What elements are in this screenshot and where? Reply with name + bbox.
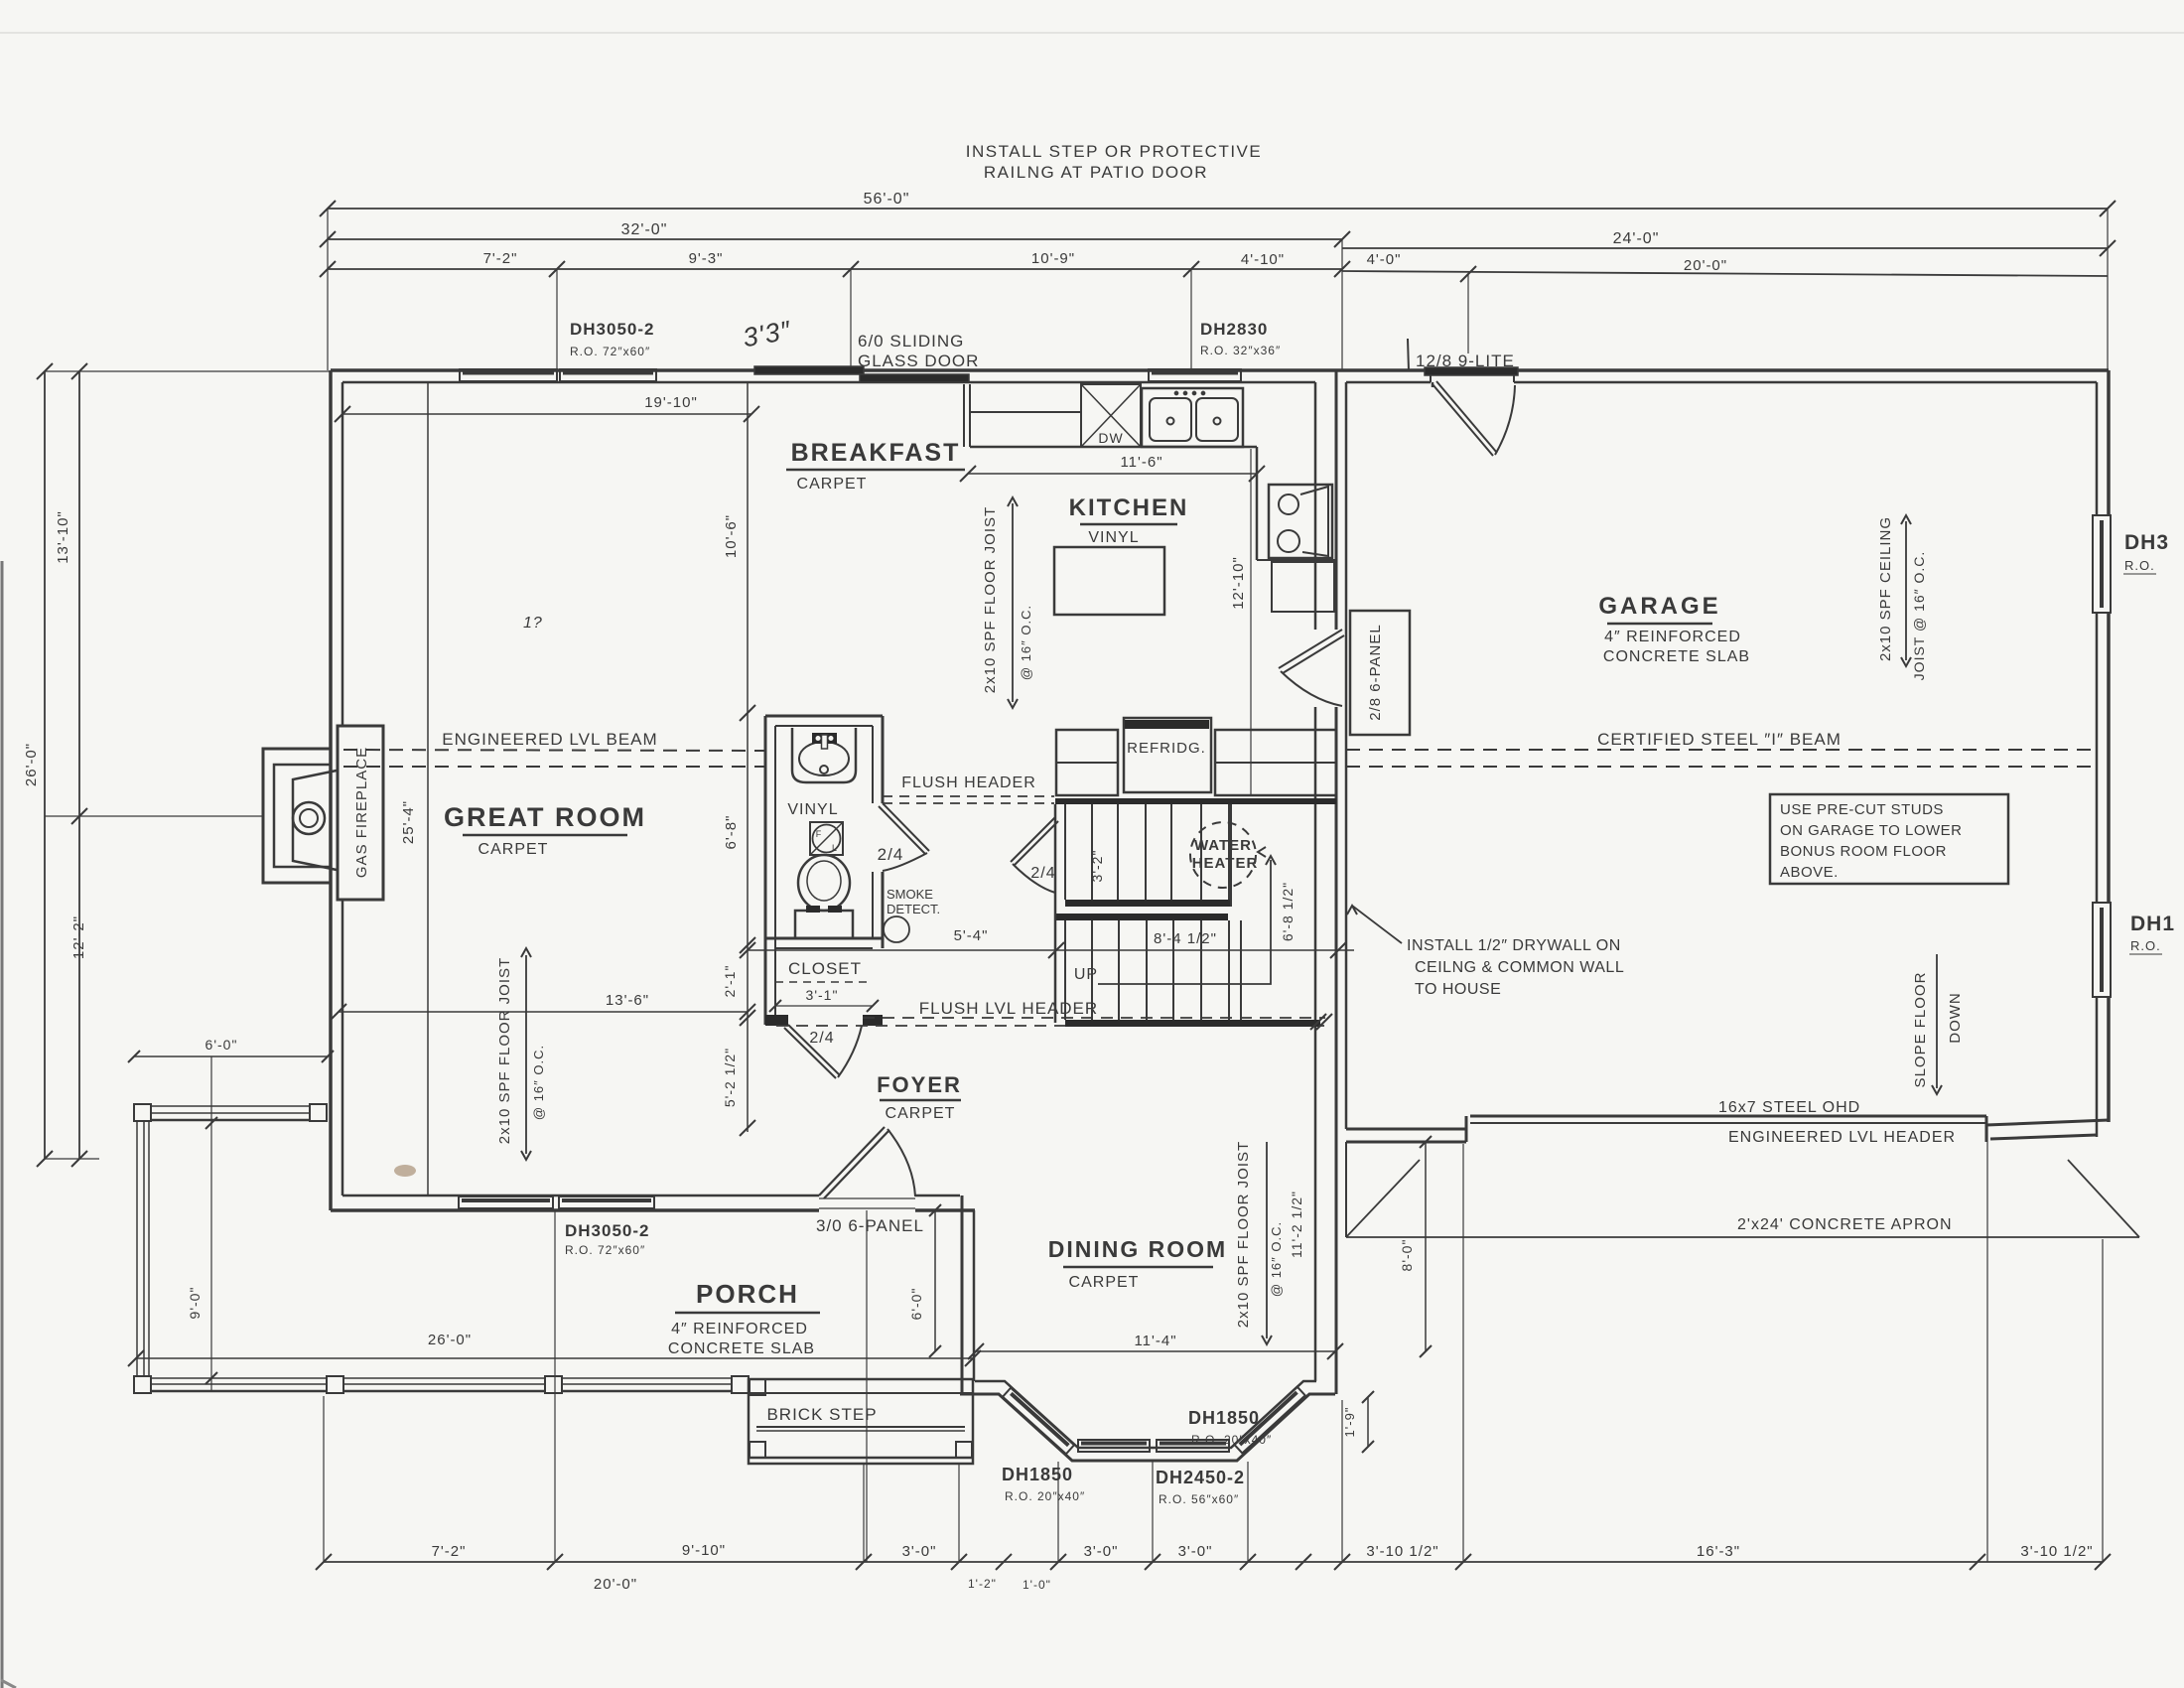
svg-text:CARPET: CARPET (1069, 1274, 1140, 1291)
svg-text:R.O. 20″x40″: R.O. 20″x40″ (1191, 1433, 1272, 1447)
svg-text:3'-0": 3'-0" (1084, 1543, 1119, 1560)
svg-text:KITCHEN: KITCHEN (1069, 494, 1189, 521)
svg-text:DW: DW (1098, 430, 1123, 446)
svg-text:1?: 1? (523, 615, 543, 632)
svg-text:6/0 SLIDING: 6/0 SLIDING (858, 332, 964, 351)
svg-text:@ 16″ O.C.: @ 16″ O.C. (1019, 605, 1033, 680)
svg-text:DH3: DH3 (2124, 531, 2169, 554)
svg-text:FOYER: FOYER (877, 1072, 962, 1097)
svg-text:10'-9": 10'-9" (1031, 250, 1075, 267)
svg-text:DH1850: DH1850 (1002, 1465, 1073, 1484)
svg-text:L: L (832, 843, 838, 853)
svg-text:R.O. 72″x60″: R.O. 72″x60″ (570, 345, 650, 358)
svg-text:24'-0": 24'-0" (1613, 230, 1660, 247)
svg-text:F: F (816, 829, 823, 839)
svg-text:USE PRE-CUT STUDS: USE PRE-CUT STUDS (1780, 801, 1944, 818)
svg-text:3/0 6-PANEL: 3/0 6-PANEL (816, 1216, 924, 1235)
svg-text:2'x24' CONCRETE APRON: 2'x24' CONCRETE APRON (1737, 1216, 1953, 1233)
svg-text:INSTALL STEP OR PROTECTIVE: INSTALL STEP OR PROTECTIVE (966, 142, 1262, 161)
svg-text:DH2830: DH2830 (1200, 320, 1268, 339)
svg-text:3'-0": 3'-0" (902, 1543, 937, 1560)
svg-text:BRICK STEP: BRICK STEP (766, 1405, 877, 1424)
svg-text:11'-6": 11'-6" (1120, 454, 1162, 471)
svg-text:25'-4": 25'-4" (400, 800, 417, 844)
svg-text:10'-6": 10'-6" (723, 514, 740, 558)
svg-text:20'-0": 20'-0" (1684, 257, 1727, 274)
svg-text:9'-3": 9'-3" (689, 250, 724, 267)
svg-text:@ 16″ O.C.: @ 16″ O.C. (531, 1045, 546, 1120)
svg-text:R.O. 72″x60″: R.O. 72″x60″ (565, 1243, 645, 1257)
svg-text:DH2450-2: DH2450-2 (1156, 1468, 1245, 1487)
svg-text:JOIST @ 16″ O.C.: JOIST @ 16″ O.C. (1911, 551, 1927, 681)
svg-text:2x10 SPF FLOOR JOIST: 2x10 SPF FLOOR JOIST (1235, 1141, 1252, 1328)
svg-text:2/8 6-PANEL: 2/8 6-PANEL (1367, 624, 1384, 720)
svg-text:5'-4": 5'-4" (954, 927, 989, 944)
svg-text:GLASS DOOR: GLASS DOOR (858, 352, 979, 370)
svg-text:R.O.: R.O. (2130, 938, 2161, 953)
svg-text:ENGINEERED LVL HEADER: ENGINEERED LVL HEADER (1728, 1129, 1956, 1146)
svg-text:7'-2": 7'-2" (483, 250, 518, 267)
svg-text:DH1850: DH1850 (1188, 1408, 1260, 1428)
svg-text:CONCRETE SLAB: CONCRETE SLAB (1603, 648, 1750, 665)
svg-text:SLOPE FLOOR: SLOPE FLOOR (1912, 972, 1929, 1088)
svg-text:RAILNG AT PATIO DOOR: RAILNG AT PATIO DOOR (984, 163, 1208, 182)
svg-text:@ 16″ O.C.: @ 16″ O.C. (1269, 1221, 1284, 1297)
svg-text:2'-1": 2'-1" (722, 965, 738, 998)
svg-text:2/4: 2/4 (809, 1030, 834, 1047)
svg-text:16x7 STEEL OHD: 16x7 STEEL OHD (1718, 1099, 1860, 1116)
svg-text:6'-8": 6'-8" (723, 815, 740, 850)
svg-text:6'-0": 6'-0" (205, 1037, 238, 1053)
svg-text:4'-10": 4'-10" (1241, 251, 1285, 268)
svg-text:26'-0": 26'-0" (428, 1332, 472, 1348)
svg-text:6'-0": 6'-0" (908, 1288, 924, 1321)
svg-text:4'-0": 4'-0" (1367, 251, 1402, 268)
svg-text:GARAGE: GARAGE (1598, 593, 1720, 620)
svg-text:2x10 SPF FLOOR JOIST: 2x10 SPF FLOOR JOIST (496, 957, 513, 1144)
svg-text:PORCH: PORCH (696, 1279, 799, 1309)
svg-text:DH3050-2: DH3050-2 (565, 1221, 650, 1240)
svg-text:13'-6": 13'-6" (606, 992, 649, 1009)
svg-text:20'-0": 20'-0" (594, 1576, 637, 1593)
svg-text:TO HOUSE: TO HOUSE (1415, 981, 1501, 998)
svg-text:4″ REINFORCED: 4″ REINFORCED (671, 1321, 808, 1337)
svg-text:CERTIFIED STEEL ″I″ BEAM: CERTIFIED STEEL ″I″ BEAM (1597, 730, 1842, 749)
svg-text:7'-2": 7'-2" (432, 1543, 467, 1560)
svg-text:2x10 SPF CEILING: 2x10 SPF CEILING (1877, 516, 1894, 661)
svg-text:3'-2": 3'-2" (1089, 850, 1105, 883)
svg-text:CARPET: CARPET (886, 1105, 956, 1122)
svg-text:16'-3": 16'-3" (1697, 1543, 1740, 1560)
svg-text:1'-0": 1'-0" (1023, 1578, 1051, 1592)
svg-text:1'-2": 1'-2" (968, 1577, 997, 1591)
svg-text:DINING ROOM: DINING ROOM (1048, 1236, 1227, 1262)
svg-text:12'-2": 12'-2" (70, 915, 87, 959)
svg-text:8'-0": 8'-0" (1399, 1239, 1415, 1272)
svg-text:CARPET: CARPET (478, 841, 549, 858)
svg-text:2/4: 2/4 (878, 845, 904, 864)
svg-text:3'-0": 3'-0" (1178, 1543, 1213, 1560)
svg-text:GREAT ROOM: GREAT ROOM (444, 802, 646, 832)
svg-text:INSTALL 1/2″ DRYWALL ON: INSTALL 1/2″ DRYWALL ON (1407, 937, 1621, 954)
svg-text:R.O. 32″x36″: R.O. 32″x36″ (1200, 344, 1281, 357)
svg-text:9'-10": 9'-10" (682, 1542, 726, 1559)
svg-text:2x10 SPF FLOOR JOIST: 2x10 SPF FLOOR JOIST (982, 506, 999, 693)
svg-text:DH3050-2: DH3050-2 (570, 320, 655, 339)
svg-text:REFRIDG.: REFRIDG. (1127, 740, 1206, 757)
svg-text:HEATER: HEATER (1192, 855, 1259, 872)
svg-text:FLUSH LVL HEADER: FLUSH LVL HEADER (919, 999, 1098, 1018)
svg-text:19'-10": 19'-10" (644, 394, 698, 411)
svg-text:DOWN: DOWN (1947, 992, 1964, 1044)
svg-text:R.O. 56″x60″: R.O. 56″x60″ (1159, 1492, 1239, 1506)
svg-text:SMOKE: SMOKE (887, 887, 933, 902)
svg-text:3'-10 1/2": 3'-10 1/2" (2020, 1543, 2093, 1560)
svg-text:8'-4 1/2": 8'-4 1/2" (1154, 930, 1217, 947)
svg-text:R.O. 20″x40″: R.O. 20″x40″ (1005, 1489, 1085, 1503)
svg-text:3'-10 1/2": 3'-10 1/2" (1366, 1543, 1438, 1560)
svg-text:UP: UP (1074, 966, 1098, 983)
svg-text:VINYL: VINYL (787, 801, 838, 818)
svg-text:3'-1": 3'-1" (806, 987, 839, 1003)
svg-text:11'-2 1/2": 11'-2 1/2" (1289, 1191, 1304, 1258)
svg-text:ENGINEERED LVL BEAM: ENGINEERED LVL BEAM (442, 730, 657, 749)
svg-text:9'-0": 9'-0" (187, 1287, 203, 1320)
svg-text:VINYL: VINYL (1088, 529, 1139, 546)
svg-text:DETECT.: DETECT. (887, 902, 940, 916)
svg-text:2/4: 2/4 (1030, 865, 1055, 882)
svg-text:DH1: DH1 (2130, 913, 2175, 935)
svg-text:CONCRETE SLAB: CONCRETE SLAB (668, 1340, 815, 1357)
svg-text:R.O.: R.O. (2124, 558, 2155, 573)
svg-text:56'-0": 56'-0" (864, 191, 910, 208)
svg-text:26'-0": 26'-0" (23, 743, 40, 786)
svg-text:6'-8 1/2": 6'-8 1/2" (1280, 882, 1296, 941)
svg-text:32'-0": 32'-0" (621, 221, 668, 238)
svg-text:CEILNG & COMMON WALL: CEILNG & COMMON WALL (1415, 959, 1624, 976)
svg-text:CLOSET: CLOSET (788, 959, 862, 978)
svg-text:ABOVE.: ABOVE. (1780, 864, 1839, 881)
svg-text:11'-4": 11'-4" (1134, 1333, 1176, 1349)
svg-text:ON GARAGE TO LOWER: ON GARAGE TO LOWER (1780, 822, 1962, 839)
svg-text:13'-10": 13'-10" (55, 510, 71, 564)
svg-text:BONUS ROOM FLOOR: BONUS ROOM FLOOR (1780, 843, 1947, 860)
svg-text:1'-9": 1'-9" (1342, 1407, 1357, 1438)
svg-text:12'-10": 12'-10" (1230, 556, 1247, 610)
svg-text:WATER: WATER (1194, 837, 1252, 854)
svg-text:CARPET: CARPET (797, 476, 868, 492)
svg-text:5'-2 1/2": 5'-2 1/2" (722, 1048, 738, 1107)
svg-text:4″ REINFORCED: 4″ REINFORCED (1604, 629, 1741, 645)
svg-text:BREAKFAST: BREAKFAST (791, 439, 961, 467)
svg-text:FLUSH HEADER: FLUSH HEADER (901, 774, 1036, 791)
